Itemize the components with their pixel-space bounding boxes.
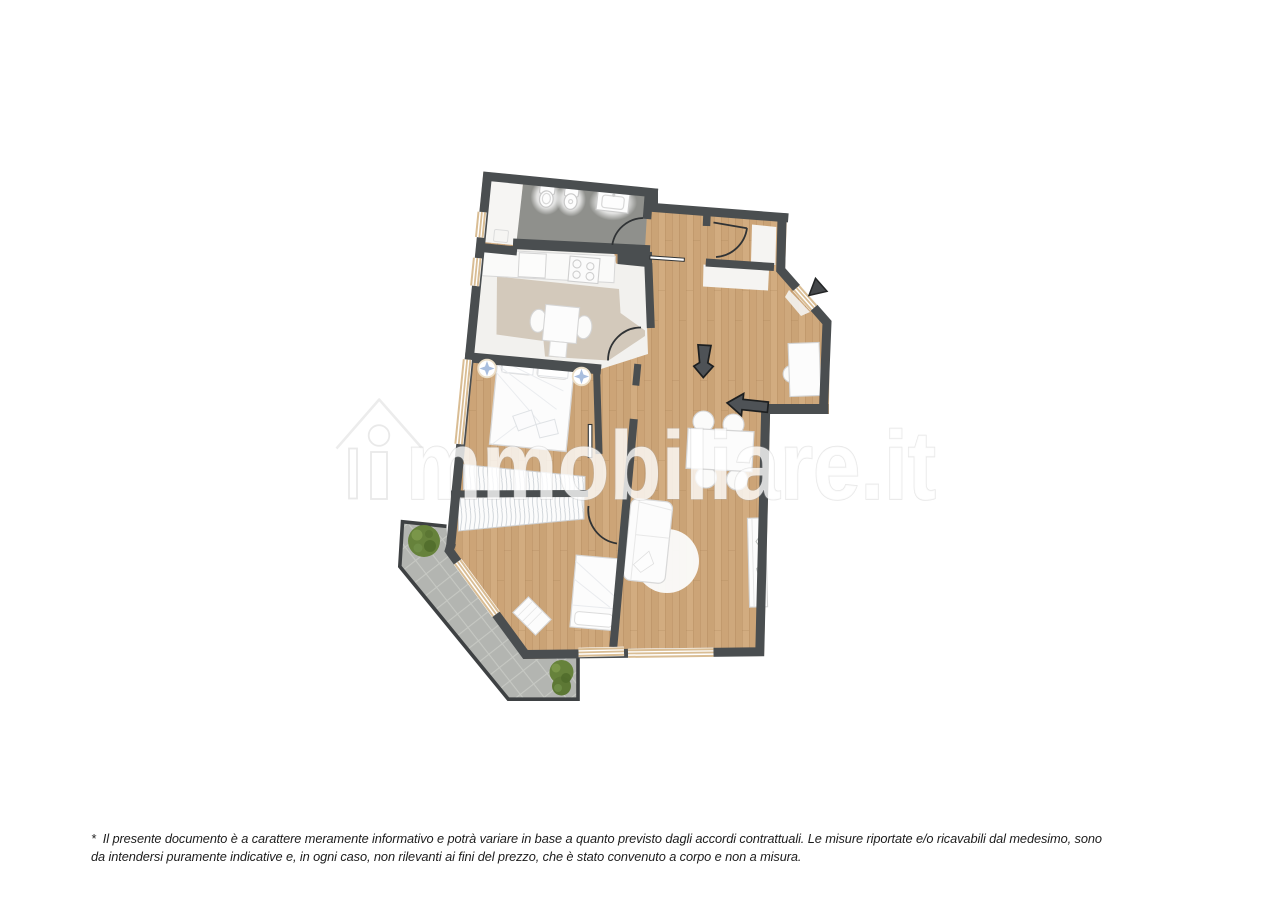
svg-text:mmobiliare.it: mmobiliare.it (406, 411, 936, 520)
